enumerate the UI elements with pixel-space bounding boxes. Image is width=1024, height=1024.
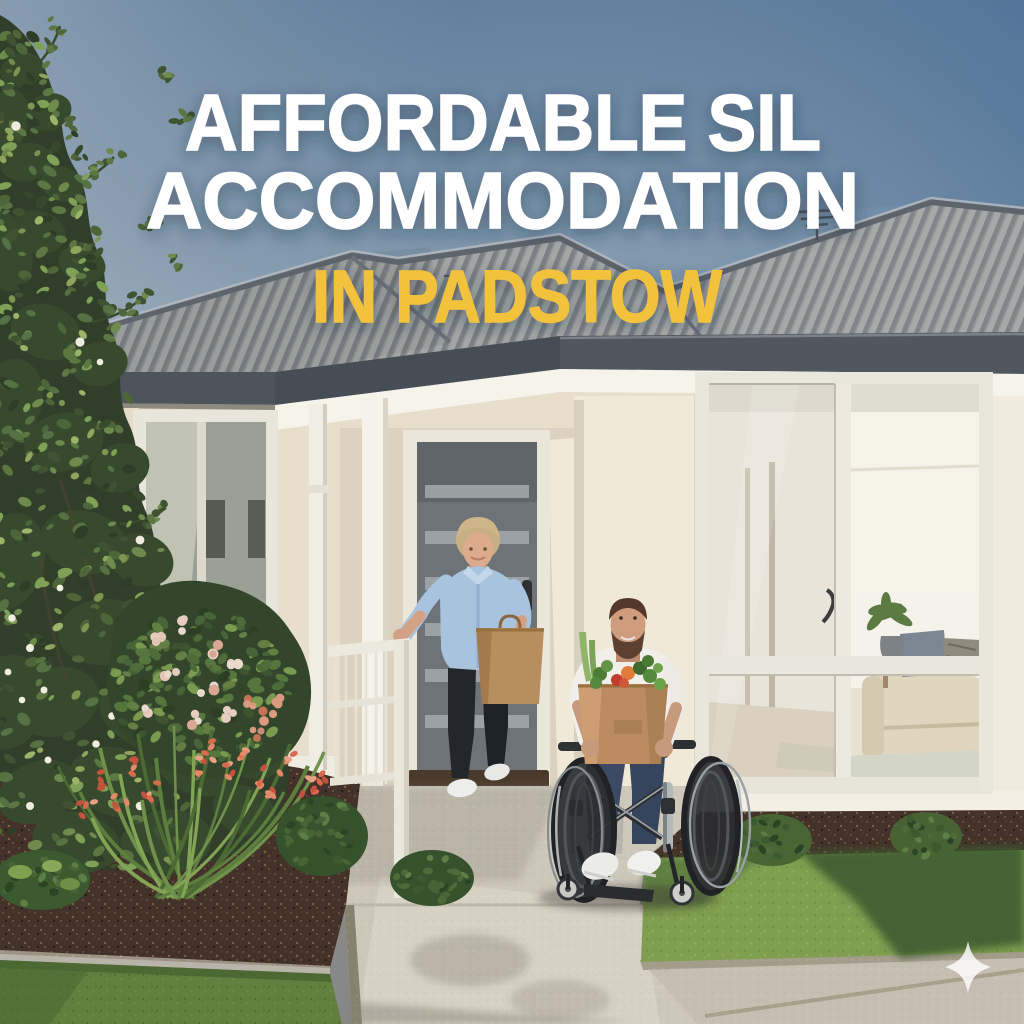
svg-text:AFFORDABLE SIL: AFFORDABLE SIL [185,78,821,167]
svg-text:IN PADSTOW: IN PADSTOW [312,255,722,338]
svg-text:ACCOMMODATION: ACCOMMODATION [146,156,859,245]
